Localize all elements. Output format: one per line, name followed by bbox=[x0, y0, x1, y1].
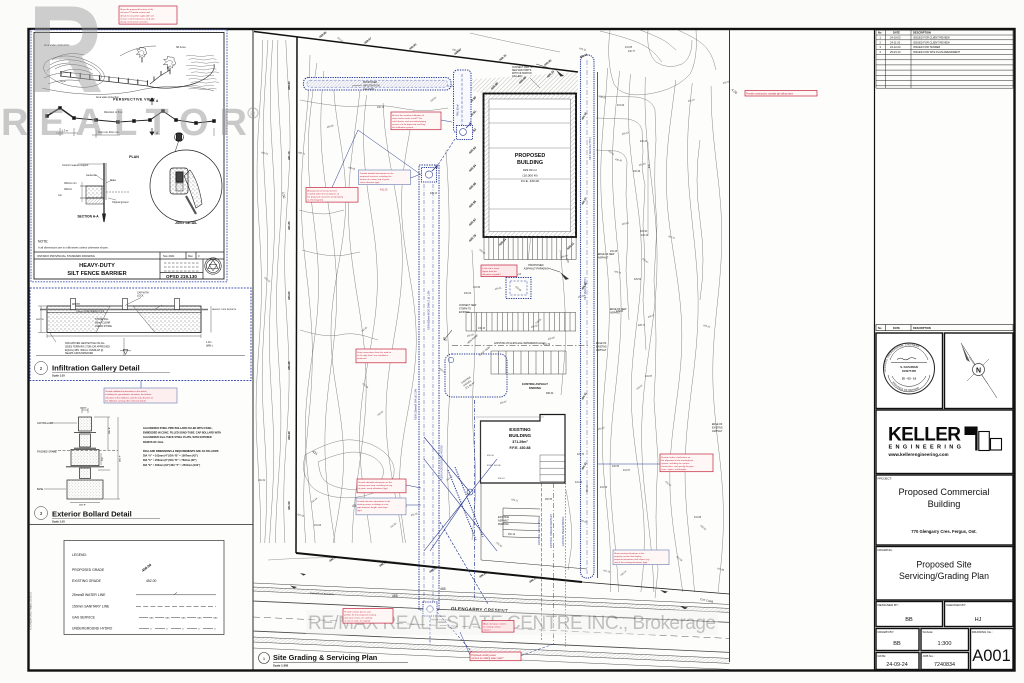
svg-text:EXISTING 25.0mØ Ductile WATERM: EXISTING 25.0mØ Ductile WATERMAIN ALLEY bbox=[494, 342, 546, 345]
svg-text:GAS: GAS bbox=[165, 616, 170, 619]
svg-text:DIA “B”: DIA “B” bbox=[108, 427, 111, 434]
svg-text:JOB No.:: JOB No.: bbox=[923, 654, 935, 658]
svg-text:this infiltration system.: this infiltration system. bbox=[392, 126, 414, 129]
svg-text:HEAVY-DUTY: HEAVY-DUTY bbox=[79, 263, 115, 269]
svg-text:returns of a name, top of grat: returns of a name, top of grate, bbox=[360, 178, 390, 181]
svg-text:Servicing/Grading Plan: Servicing/Grading Plan bbox=[899, 571, 989, 581]
svg-text:proposed structure, including: proposed structure, including the bbox=[360, 175, 393, 178]
svg-text:ASPHALT PARKING: ASPHALT PARKING bbox=[524, 267, 549, 271]
svg-text:ASPHALT: ASPHALT bbox=[712, 430, 723, 433]
svg-text:Provide contact pieces and: Provide contact pieces and bbox=[344, 610, 371, 613]
svg-text:429.52: 429.52 bbox=[634, 279, 642, 281]
svg-text:GAS: GAS bbox=[197, 616, 202, 619]
svg-text:Scale 1:10: Scale 1:10 bbox=[52, 519, 65, 523]
svg-text:431.70: 431.70 bbox=[287, 151, 291, 160]
svg-text:431.57: 431.57 bbox=[645, 376, 653, 378]
svg-text:431.85: 431.85 bbox=[625, 47, 633, 49]
svg-text:431.20: 431.20 bbox=[380, 189, 388, 192]
svg-text:ASPHALT: ASPHALT bbox=[610, 311, 621, 314]
svg-text:ISSUED FOR CLIENT REVIEW: ISSUED FOR CLIENT REVIEW bbox=[913, 36, 950, 40]
svg-text:430.60: 430.60 bbox=[287, 291, 291, 300]
svg-text:profiles for the proposed sani: profiles for the proposed sanitary bbox=[344, 613, 377, 616]
svg-text:EXISTING 25mmØ WATER: EXISTING 25mmØ WATER bbox=[562, 516, 565, 546]
svg-text:1:300: 1:300 bbox=[938, 641, 952, 647]
svg-text:450.19: 450.19 bbox=[508, 534, 516, 536]
svg-text:GAS: GAS bbox=[181, 616, 186, 619]
svg-text:Ensure the overflow infiltrati: Ensure the overflow infiltration of bbox=[392, 114, 424, 117]
svg-text:450.10: 450.10 bbox=[498, 478, 505, 480]
svg-text:Original ground: Original ground bbox=[112, 201, 129, 204]
svg-text:Building: Building bbox=[928, 499, 961, 509]
svg-text:CONNECT RWL TO: CONNECT RWL TO bbox=[512, 67, 533, 69]
svg-text:erosion control measures used: erosion control measures used and bbox=[120, 17, 155, 20]
svg-text:450.55: 450.55 bbox=[545, 499, 553, 501]
svg-text:GALVANIZED STEEL PIPE BOLLARD: GALVANIZED STEEL PIPE BOLLARD FILLED WIT… bbox=[143, 427, 213, 430]
svg-text:Site Grading & Servicing Plan: Site Grading & Servicing Plan bbox=[273, 653, 378, 662]
svg-text:Nov 2021: Nov 2021 bbox=[163, 254, 175, 258]
svg-text:BB: BB bbox=[893, 641, 901, 647]
svg-text:OPSD 219.130: OPSD 219.130 bbox=[166, 274, 197, 279]
svg-text:Silt fence: Silt fence bbox=[176, 46, 187, 49]
svg-text:protected: protected bbox=[357, 357, 367, 360]
svg-text:SECTION A-A: SECTION A-A bbox=[77, 215, 99, 219]
svg-text:25 - 03 - 10: 25 - 03 - 10 bbox=[902, 377, 917, 381]
svg-text:at east or walls, for asphalt: at east or walls, for asphalt bbox=[344, 620, 370, 623]
svg-text:NOTE:: NOTE: bbox=[38, 240, 48, 244]
svg-text:Infiltration Gallery Detail: Infiltration Gallery Detail bbox=[52, 364, 140, 373]
svg-text:existing sewer, including its: existing sewer, including its size, bbox=[357, 503, 389, 506]
svg-text:431.93: 431.93 bbox=[617, 105, 625, 107]
svg-text:431.31: 431.31 bbox=[258, 480, 266, 482]
svg-text:Exterior Bollard Detail: Exterior Bollard Detail bbox=[52, 510, 132, 519]
svg-text:24-10-03: 24-10-03 bbox=[890, 36, 901, 40]
svg-text:A001: A001 bbox=[972, 647, 1011, 665]
svg-text:300mm min: 300mm min bbox=[64, 182, 77, 185]
svg-text:429.34: 429.34 bbox=[287, 81, 291, 90]
svg-text:proposed elevations and slopes: proposed elevations and slopes (sq) bbox=[614, 558, 649, 561]
svg-text:DIA “C” = 203mm (8”) DIA “D”: DIA “C” = 203mm (8”) DIA “D” = 762mm (30… bbox=[143, 459, 197, 462]
svg-text:Proposed Site: Proposed Site bbox=[916, 560, 971, 570]
svg-text:details for any other applicab: details for any other applicable soil bbox=[120, 14, 154, 17]
svg-text:R: R bbox=[250, 110, 256, 119]
svg-text:431.88: 431.88 bbox=[694, 517, 702, 519]
svg-text:F.F.E. 430.00: F.F.E. 430.00 bbox=[521, 179, 539, 183]
svg-text:EXIST DOOR: EXIST DOOR bbox=[487, 465, 501, 467]
svg-text:GALLERY: GALLERY bbox=[363, 88, 375, 91]
svg-text:Is the site’s sheet: Is the site’s sheet bbox=[482, 267, 499, 270]
svg-text:www.kellerengineering.com: www.kellerengineering.com bbox=[888, 452, 949, 457]
svg-text:431.80: 431.80 bbox=[287, 221, 291, 230]
svg-text:DESIGNED BY:: DESIGNED BY: bbox=[878, 603, 899, 607]
svg-text:BOLLARD DIMENSIONS & REQUIREME: BOLLARD DIMENSIONS & REQUIREMENTS ARE AS… bbox=[143, 450, 219, 453]
svg-text:catch basins and associated pi: catch basins and associated piping bbox=[392, 120, 427, 123]
svg-text:EDGE OF NEW: EDGE OF NEW bbox=[598, 254, 615, 256]
svg-text:property section that display: property section that display bbox=[614, 555, 642, 558]
svg-text:430.55: 430.55 bbox=[612, 466, 620, 468]
svg-text:PLAN: PLAN bbox=[129, 155, 139, 159]
svg-text:430.48: 430.48 bbox=[633, 171, 641, 173]
svg-text:Provide construction, sandals: Provide construction, sandals pip railin… bbox=[746, 93, 794, 96]
svg-text:431.36: 431.36 bbox=[600, 487, 608, 489]
svg-text:24-11-20: 24-11-20 bbox=[890, 40, 901, 44]
svg-text:Rev: Rev bbox=[188, 254, 193, 258]
svg-text:EXISTING: EXISTING bbox=[712, 427, 723, 429]
svg-text:429.29: 429.29 bbox=[287, 431, 291, 440]
svg-text:DEPTH: DEPTH bbox=[36, 319, 44, 321]
svg-text:SILT FENCE BARRIER: SILT FENCE BARRIER bbox=[67, 271, 126, 277]
svg-text:sizes, slopes, and lengths.: sizes, slopes, and lengths. bbox=[661, 468, 687, 471]
svg-text:elevation of grade?: elevation of grade? bbox=[482, 273, 501, 276]
svg-text:and water mains, for sanitary: and water mains, for sanitary bbox=[344, 617, 373, 620]
svg-text:NEW 600mm WIDE SWALE @ 1.0%: NEW 600mm WIDE SWALE @ 1.0% bbox=[428, 290, 431, 330]
svg-text:LEGEND:: LEGEND: bbox=[72, 553, 87, 557]
svg-text:LOCK: LOCK bbox=[137, 295, 144, 298]
svg-text:430.76: 430.76 bbox=[377, 107, 385, 109]
svg-text:BASE: BASE bbox=[37, 488, 44, 491]
svg-text:DRAWING:: DRAWING: bbox=[878, 548, 893, 552]
svg-text:at existing contact: at existing contact bbox=[483, 625, 501, 628]
svg-text:24-12-20: 24-12-20 bbox=[890, 45, 901, 49]
svg-text:770 Glengarry Cres. Fergus, On: 770 Glengarry Cres. Fergus, Ont. bbox=[911, 529, 976, 534]
svg-text:Provide further clarification: Provide further clarification on bbox=[661, 456, 691, 459]
svg-text:installed within the boundarie: installed within the boundaries of bbox=[307, 192, 339, 195]
svg-text:WITH FILTRATION: WITH FILTRATION bbox=[512, 72, 532, 75]
svg-text:DIA “F”: DIA “F” bbox=[119, 455, 122, 462]
svg-text:connections, and specify the p: connections, and specify the pipe bbox=[661, 465, 694, 468]
svg-text:GALVANIZED 6mm THICK STEEL PLA: GALVANIZED 6mm THICK STEEL PLATE, WITH E… bbox=[143, 436, 212, 439]
svg-text:system, including the surface: system, including the surface bbox=[661, 462, 690, 465]
svg-text:N: N bbox=[976, 367, 981, 374]
svg-text:PARKING: PARKING bbox=[498, 523, 509, 526]
svg-text:Scale 1:10: Scale 1:10 bbox=[52, 373, 65, 377]
svg-text:ONTARIO PROVINCIAL STANDARD: ONTARIO PROVINCIAL STANDARD DRAWING bbox=[37, 254, 95, 258]
svg-text:25-03-10: 25-03-10 bbox=[890, 50, 901, 54]
svg-text:PARKING: PARKING bbox=[529, 386, 541, 390]
svg-text:300mm: 300mm bbox=[64, 188, 72, 191]
svg-text:CLEAR STONE: CLEAR STONE bbox=[95, 325, 112, 328]
svg-text:431.66: 431.66 bbox=[473, 287, 481, 289]
svg-text:CAP BOLLARD: CAP BOLLARD bbox=[37, 422, 53, 425]
svg-text:the infiltrator, among other r: the infiltrator, among other relevant de… bbox=[105, 399, 147, 402]
svg-text:clean roof-to-water runoff? T: clean roof-to-water runoff? The bbox=[392, 117, 423, 120]
svg-text:DIA “E”: DIA “E” bbox=[79, 504, 86, 507]
svg-text:100077455: 100077455 bbox=[902, 369, 916, 373]
svg-text:EXISTING GAS SERVICE: EXISTING GAS SERVICE bbox=[538, 517, 541, 545]
svg-text:KELLER: KELLER bbox=[888, 425, 961, 446]
svg-text:DIA“A”: DIA“A” bbox=[80, 407, 87, 410]
svg-text:431.25: 431.25 bbox=[575, 482, 583, 484]
svg-text:Control measure support: Control measure support bbox=[62, 164, 89, 167]
svg-text:STORM TO: STORM TO bbox=[459, 308, 471, 310]
svg-text:No: No bbox=[878, 31, 882, 35]
svg-text:DRAWN BY:: DRAWN BY: bbox=[878, 630, 895, 634]
svg-text:SCALE:: SCALE: bbox=[923, 630, 934, 634]
svg-text:ENGINEERING: ENGINEERING bbox=[889, 445, 962, 451]
svg-text:430.77: 430.77 bbox=[628, 51, 636, 53]
svg-text:ensure a to be dispersed and l: ensure a to be dispersed and long bbox=[392, 123, 426, 126]
svg-text:EXISTING 150mmØ SANITARY: EXISTING 150mmØ SANITARY bbox=[550, 514, 553, 548]
svg-text:450.40: 450.40 bbox=[587, 484, 589, 492]
svg-text:GAS SERVICE: GAS SERVICE bbox=[72, 616, 96, 620]
svg-text:including the groundwater elev: including the groundwater elevation, the… bbox=[105, 393, 151, 396]
svg-text:25mmØ WATER LINE: 25mmØ WATER LINE bbox=[72, 593, 106, 597]
svg-text:CHECKED BY:: CHECKED BY: bbox=[946, 603, 966, 607]
svg-text:485: 485 bbox=[440, 587, 446, 591]
svg-text:EDGE OF: EDGE OF bbox=[712, 424, 723, 426]
svg-text:as (%) Diagram): as (%) Diagram) bbox=[307, 199, 323, 202]
svg-text:452.00: 452.00 bbox=[146, 579, 156, 583]
svg-text:ISSUED FOR CLIENT REVIEW: ISSUED FOR CLIENT REVIEW bbox=[913, 40, 950, 44]
svg-text:Show the proposed location of: Show the proposed location of the bbox=[120, 8, 154, 11]
svg-text:CONNECT NEW: CONNECT NEW bbox=[459, 305, 477, 307]
svg-text:430.13: 430.13 bbox=[430, 193, 438, 195]
svg-text:STONE FILL: STONE FILL bbox=[95, 318, 109, 321]
svg-text:K:\7240834\DWG Plotted: 25-03: K:\7240834\DWG Plotted: 25-03-10 bbox=[30, 592, 33, 630]
svg-text:F.F.E. 430.88: F.F.E. 430.88 bbox=[510, 446, 531, 450]
svg-text:ASPHALT: ASPHALT bbox=[598, 256, 609, 259]
svg-text:429.31: 429.31 bbox=[641, 235, 649, 237]
svg-text:All proposed servicing must be: All proposed servicing must be bbox=[307, 189, 338, 192]
svg-text:Provide detailed information o: Provide detailed information on the bbox=[358, 481, 393, 484]
svg-text:DIA “E” = 460mm (18”) DIA “F”: DIA “E” = 460mm (18”) DIA “F” = 2591mm (… bbox=[143, 464, 200, 467]
svg-text:431.29: 431.29 bbox=[287, 361, 291, 370]
svg-text:min: min bbox=[58, 194, 63, 197]
svg-text:Geotextile: Geotextile bbox=[86, 174, 97, 177]
svg-text:Scale 1:300: Scale 1:300 bbox=[273, 664, 289, 668]
svg-text:pipe material, length, and slo: pipe material, length, and slope bbox=[357, 506, 388, 509]
svg-text:SILT FENCE (TYP.): SILT FENCE (TYP.) bbox=[588, 137, 592, 160]
svg-text:the alignment of the existing/: the alignment of the existing/new bbox=[661, 459, 693, 462]
svg-text:PROPOSED: PROPOSED bbox=[528, 263, 543, 267]
svg-text:EXISTING: EXISTING bbox=[459, 312, 470, 314]
svg-text:EXISTING: EXISTING bbox=[509, 427, 531, 432]
svg-text:GAS: GAS bbox=[149, 616, 154, 619]
svg-text:7240834: 7240834 bbox=[934, 662, 955, 668]
svg-text:HJ: HJ bbox=[975, 617, 982, 623]
svg-text:FINISHED GRADE: FINISHED GRADE bbox=[37, 450, 57, 453]
svg-text:429.90: 429.90 bbox=[640, 231, 648, 233]
svg-text:during construction activities: during construction activities. bbox=[120, 21, 148, 24]
svg-text:No: No bbox=[878, 326, 882, 330]
svg-text:of grate, invert elevations (t: of grate, invert elevations (typ) bbox=[358, 487, 388, 490]
svg-text:SEAMS GROUNDWATER: SEAMS GROUNDWATER bbox=[65, 352, 93, 355]
svg-text:silt fence? Provide section an: silt fence? Provide section and bbox=[120, 11, 150, 14]
svg-text:DRAWING No.:: DRAWING No.: bbox=[972, 630, 993, 634]
svg-text:PROPOSED GRADE: PROPOSED GRADE bbox=[72, 568, 105, 572]
svg-text:RADIUS OF 2mm.: RADIUS OF 2mm. bbox=[143, 441, 164, 444]
svg-text:431.59: 431.59 bbox=[287, 501, 291, 510]
svg-text:EMBEDDED IN CONC. FILLED SONO-: EMBEDDED IN CONC. FILLED SONO-TUBE. CAP … bbox=[143, 432, 221, 435]
svg-text:DIA “A” = 102mm (4”) DIA “B”: DIA “A” = 102mm (4”) DIA “B” = 1067mm (4… bbox=[143, 455, 198, 458]
svg-text:50mm CLEAR: 50mm CLEAR bbox=[95, 322, 111, 325]
svg-text:the proposed easement and prop: the proposed easement and property bbox=[307, 196, 344, 199]
svg-text:DATE: DATE bbox=[893, 31, 900, 35]
svg-text:Provide election information t: Provide election information to the bbox=[357, 500, 391, 503]
svg-text:(10,000 ft²): (10,000 ft²) bbox=[522, 174, 537, 178]
svg-text:PERSPECTIVE VIEW: PERSPECTIVE VIEW bbox=[113, 98, 155, 102]
svg-text:GALLERY: GALLERY bbox=[512, 75, 523, 78]
svg-text:431.57: 431.57 bbox=[623, 470, 631, 472]
svg-text:430.63: 430.63 bbox=[464, 293, 472, 295]
svg-text:DESCRIPTION: DESCRIPTION bbox=[913, 326, 931, 330]
svg-text:(typ): (typ) bbox=[357, 509, 362, 512]
svg-text:24-09-24: 24-09-24 bbox=[886, 662, 908, 668]
svg-text:A all dimensions are in milli: A all dimensions are in millimetres unle… bbox=[38, 246, 109, 250]
svg-text:450.34: 450.34 bbox=[546, 392, 554, 395]
svg-text:NEW UNDERGROUND HYDRO: NEW UNDERGROUND HYDRO bbox=[441, 445, 444, 480]
svg-text:HEIGHT: PIPE INVERTS: HEIGHT: PIPE INVERTS bbox=[212, 309, 237, 311]
svg-text:connect to existing water main: connect to existing water main? bbox=[471, 657, 504, 660]
svg-text:430.15: 430.15 bbox=[478, 328, 486, 330]
svg-text:Provide additional information: Provide additional information to this d… bbox=[105, 390, 147, 393]
svg-text:PROJECT:: PROJECT: bbox=[878, 477, 893, 481]
svg-text:450.34: 450.34 bbox=[487, 455, 494, 457]
svg-text:371.29m²: 371.29m² bbox=[512, 440, 528, 444]
svg-text:invert elevation (typ): invert elevation (typ) bbox=[360, 181, 380, 184]
svg-text:430.44: 430.44 bbox=[640, 141, 648, 143]
svg-text:829.00 m²: 829.00 m² bbox=[523, 168, 537, 172]
svg-text:BB: BB bbox=[905, 617, 913, 623]
svg-text:WIDTH: WIDTH bbox=[72, 303, 80, 306]
svg-text:higher than the: higher than the bbox=[482, 270, 497, 273]
svg-text:Provide detailed information o: Provide detailed information on the bbox=[360, 172, 395, 175]
svg-text:Proposed existing sewer: Proposed existing sewer bbox=[471, 654, 496, 657]
svg-text:PROPOSED: PROPOSED bbox=[515, 153, 546, 159]
svg-text:Align and space sewers: Align and space sewers bbox=[483, 622, 507, 625]
svg-text:existing new map, including th: existing new map, including the top bbox=[358, 484, 393, 487]
svg-text:ISSUED FOR TENDER: ISSUED FOR TENDER bbox=[913, 45, 940, 49]
svg-text:NEW AND PORTS: NEW AND PORTS bbox=[512, 69, 532, 72]
svg-text:DATE: DATE bbox=[893, 326, 900, 330]
svg-text:Keep connections from the road: Keep connections from the road so bbox=[357, 351, 392, 354]
svg-text:GAS: GAS bbox=[213, 616, 218, 619]
svg-text:match the existing elevations: match the existing elevations (typ) bbox=[614, 561, 647, 564]
svg-text:JOINT DETAIL: JOINT DETAIL bbox=[175, 221, 197, 225]
svg-text:elevation of the infiltrator,: elevation of the infiltrator, and the to… bbox=[105, 396, 153, 399]
svg-text:RWL 60 m²: RWL 60 m² bbox=[457, 104, 460, 116]
svg-text:DESCRIPTION: DESCRIPTION bbox=[913, 31, 931, 35]
svg-text:150mm SANITARY LINE: 150mm SANITARY LINE bbox=[72, 605, 110, 609]
svg-text:UNDERGROUND HYDRO: UNDERGROUND HYDRO bbox=[72, 627, 113, 631]
svg-text:430.28: 430.28 bbox=[610, 251, 618, 253]
svg-text:(MIN.): (MIN.) bbox=[206, 344, 213, 347]
svg-text:in the right lane? are install: in the right lane? are installed or bbox=[357, 354, 388, 357]
svg-text:BUILDING: BUILDING bbox=[517, 160, 543, 166]
svg-text:EXISTING ASPHALT: EXISTING ASPHALT bbox=[522, 382, 548, 386]
svg-text:DATE:: DATE: bbox=[878, 654, 887, 658]
svg-text:485: 485 bbox=[392, 594, 398, 598]
svg-text:BUILDING: BUILDING bbox=[509, 433, 532, 438]
svg-text:NEW 150mmØ SAN @ 2.0%: NEW 150mmØ SAN @ 2.0% bbox=[415, 388, 418, 420]
svg-text:431.63: 431.63 bbox=[314, 525, 322, 527]
svg-text:EDGE OF NEW: EDGE OF NEW bbox=[610, 309, 627, 311]
svg-text:Show existing elevations to th: Show existing elevations to the bbox=[614, 552, 645, 555]
svg-text:ISSUED FOR SITE PLAN AMENDMENT: ISSUED FOR SITE PLAN AMENDMENT bbox=[913, 50, 961, 54]
svg-text:Proposed Commercial: Proposed Commercial bbox=[899, 487, 990, 497]
svg-text:EXISTING GRADE: EXISTING GRADE bbox=[72, 579, 102, 583]
svg-text:150mm PERFORATED PIPE: 150mm PERFORATED PIPE bbox=[76, 310, 105, 313]
svg-text:values?: values? bbox=[483, 630, 491, 632]
